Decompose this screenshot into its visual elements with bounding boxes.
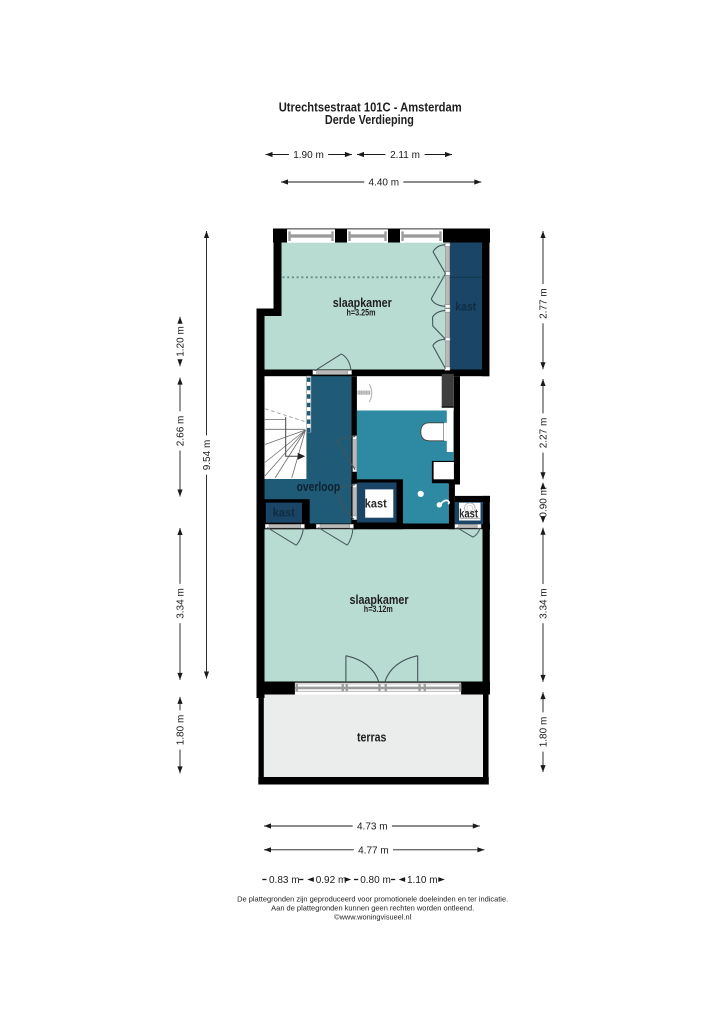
svg-text:3.34 m: 3.34 m <box>176 588 187 619</box>
svg-text:9.54 m: 9.54 m <box>202 440 213 471</box>
svg-text:kast: kast <box>273 505 295 519</box>
svg-text:2.66 m: 2.66 m <box>176 416 187 447</box>
svg-text:kast: kast <box>455 300 476 314</box>
svg-text:overloop: overloop <box>297 479 341 494</box>
svg-text:1.80 m: 1.80 m <box>176 715 187 746</box>
svg-text:De plattegronden zijn geproduc: De plattegronden zijn geproduceerd voor … <box>237 895 508 904</box>
svg-text:kast: kast <box>365 496 387 510</box>
svg-text:Derde Verdieping: Derde Verdieping <box>325 112 414 127</box>
svg-text:terras: terras <box>357 730 387 745</box>
svg-text:2.27 m: 2.27 m <box>539 418 550 449</box>
svg-text:4.77 m: 4.77 m <box>358 845 389 856</box>
svg-text:2.77 m: 2.77 m <box>539 288 550 319</box>
svg-text:0.92 m: 0.92 m <box>316 875 347 886</box>
svg-text:h=3.25m: h=3.25m <box>347 308 376 318</box>
svg-text:0.90 m: 0.90 m <box>539 487 550 518</box>
svg-text:h=3.12m: h=3.12m <box>364 604 393 614</box>
svg-text:0.80 m: 0.80 m <box>360 875 391 886</box>
svg-text:Aan de plattegronden kunnen ge: Aan de plattegronden kunnen geen rechten… <box>271 904 474 913</box>
svg-text:4.73 m: 4.73 m <box>357 822 388 833</box>
svg-text:1.10 m: 1.10 m <box>407 875 438 886</box>
svg-text:1.80 m: 1.80 m <box>539 717 550 748</box>
svg-text:4.40 m: 4.40 m <box>369 178 400 189</box>
svg-text:0.83 m: 0.83 m <box>269 875 300 886</box>
svg-text:©www.woningvisueel.nl: ©www.woningvisueel.nl <box>334 912 411 921</box>
svg-text:1.90 m: 1.90 m <box>293 150 324 161</box>
svg-text:kast: kast <box>459 506 478 520</box>
svg-text:3.34 m: 3.34 m <box>539 588 550 619</box>
svg-text:2.11 m: 2.11 m <box>390 150 420 161</box>
svg-text:1.20 m: 1.20 m <box>176 326 187 357</box>
